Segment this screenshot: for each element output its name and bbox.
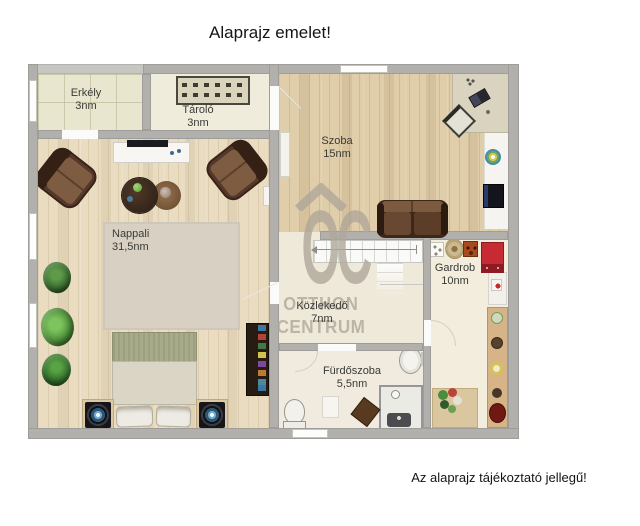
- flower-icon: [448, 405, 456, 413]
- bath-mat: [322, 396, 339, 418]
- bathroom-door-opening: [318, 344, 356, 351]
- shower-drain-icon: [391, 390, 400, 399]
- decor-ball-blue-icon: [127, 196, 133, 202]
- cd-player-icon: [485, 149, 501, 165]
- floor-plan: Alaprajz emelet!: [0, 0, 640, 526]
- page-title: Alaprajz emelet!: [120, 23, 420, 43]
- sofa-back: [381, 201, 444, 212]
- bed-mattress: [112, 361, 197, 405]
- window-bathroom: [292, 429, 328, 438]
- room-area: 10nm: [435, 275, 475, 288]
- tv-on-sideboard-icon: [127, 140, 168, 147]
- small-appliance-icon: [491, 279, 502, 291]
- balcony-door-opening: [62, 130, 98, 139]
- vase-icon: [489, 403, 506, 423]
- watermark-monogram: OC: [301, 200, 342, 296]
- cup-icon: [170, 151, 174, 155]
- flower-icon: [453, 396, 462, 405]
- room-area: 5,5nm: [323, 378, 381, 391]
- room-area: 3nm: [182, 117, 213, 130]
- toy-box-icon: [463, 241, 478, 257]
- speaker-icon: [199, 402, 225, 428]
- tv-icon: [483, 184, 504, 208]
- sofa-cushion: [384, 212, 411, 235]
- window-left-lower: [29, 303, 37, 348]
- room-area: 3nm: [71, 100, 102, 113]
- window-balcony: [29, 80, 37, 122]
- wardrobe-base: [481, 264, 504, 273]
- room-name: Tároló: [182, 104, 213, 117]
- plate-icon: [491, 337, 503, 349]
- wall-top: [143, 64, 519, 74]
- gardrob-door-opening: [424, 320, 431, 346]
- disclaimer-note: Az alaprajz tájékoztató jellegű!: [389, 470, 609, 485]
- plate-icon: [492, 388, 502, 398]
- cup-icon: [177, 149, 181, 153]
- plate-icon: [490, 362, 503, 375]
- speaker-icon: [85, 402, 111, 428]
- window-top: [340, 65, 388, 73]
- shelf-strip: [484, 133, 508, 229]
- window-left-upper: [29, 213, 37, 260]
- wall-top-balcony: [28, 64, 148, 74]
- plate-icon: [491, 312, 503, 324]
- room-area: 31,5nm: [112, 241, 149, 254]
- sink-icon: [399, 347, 422, 374]
- room-name: Közlekedő: [296, 300, 347, 313]
- room-name: Erkély: [71, 87, 102, 100]
- white-cabinet-icon: [280, 132, 290, 177]
- sofa-armrest: [377, 203, 384, 235]
- room-label-nappali: Nappali 31,5nm: [112, 228, 149, 254]
- room-label-szoba: Szoba 15nm: [321, 135, 352, 161]
- flower-icon: [438, 390, 448, 400]
- bed-headboard: [112, 332, 197, 362]
- shelf-row: [182, 83, 244, 87]
- szoba-door-opening: [270, 86, 279, 130]
- sofa-icon: [377, 200, 448, 238]
- room-name: Nappali: [112, 228, 149, 241]
- wall-bottom: [28, 428, 519, 439]
- storage-shelf-icon: [176, 76, 250, 105]
- pillow-icon: [116, 405, 154, 427]
- wall-erkely-divider: [142, 74, 151, 130]
- room-label-gardrob: Gardrob 10nm: [435, 262, 475, 288]
- pillow-icon: [156, 405, 192, 427]
- sofa-armrest: [441, 203, 448, 235]
- shelf-row: [182, 93, 244, 97]
- room-label-tarolo: Tároló 3nm: [182, 104, 213, 130]
- wall-right: [508, 64, 519, 439]
- sofa-cushion: [414, 212, 441, 235]
- storage-box-icon: [430, 242, 444, 257]
- room-label-kozlekedo: Közlekedő 7nm: [296, 300, 347, 326]
- stairs-arrow-tick: [416, 245, 417, 254]
- desk-items-icon: [466, 78, 476, 86]
- room-area: 15nm: [321, 148, 352, 161]
- room-area: 7nm: [296, 313, 347, 326]
- room-name: Szoba: [321, 135, 352, 148]
- flower-decor-icon: [160, 187, 171, 198]
- decor-ball-green-icon: [133, 183, 142, 192]
- stairs-edge-line: [380, 284, 423, 285]
- room-name: Fürdőszoba: [323, 365, 381, 378]
- room-label-erkely: Erkély 3nm: [71, 87, 102, 113]
- desk-dot-icon: [486, 110, 490, 114]
- shower-stool-icon: [387, 413, 411, 427]
- room-label-furdoszoba: Fürdőszoba 5,5nm: [323, 365, 381, 391]
- room-name: Gardrob: [435, 262, 475, 275]
